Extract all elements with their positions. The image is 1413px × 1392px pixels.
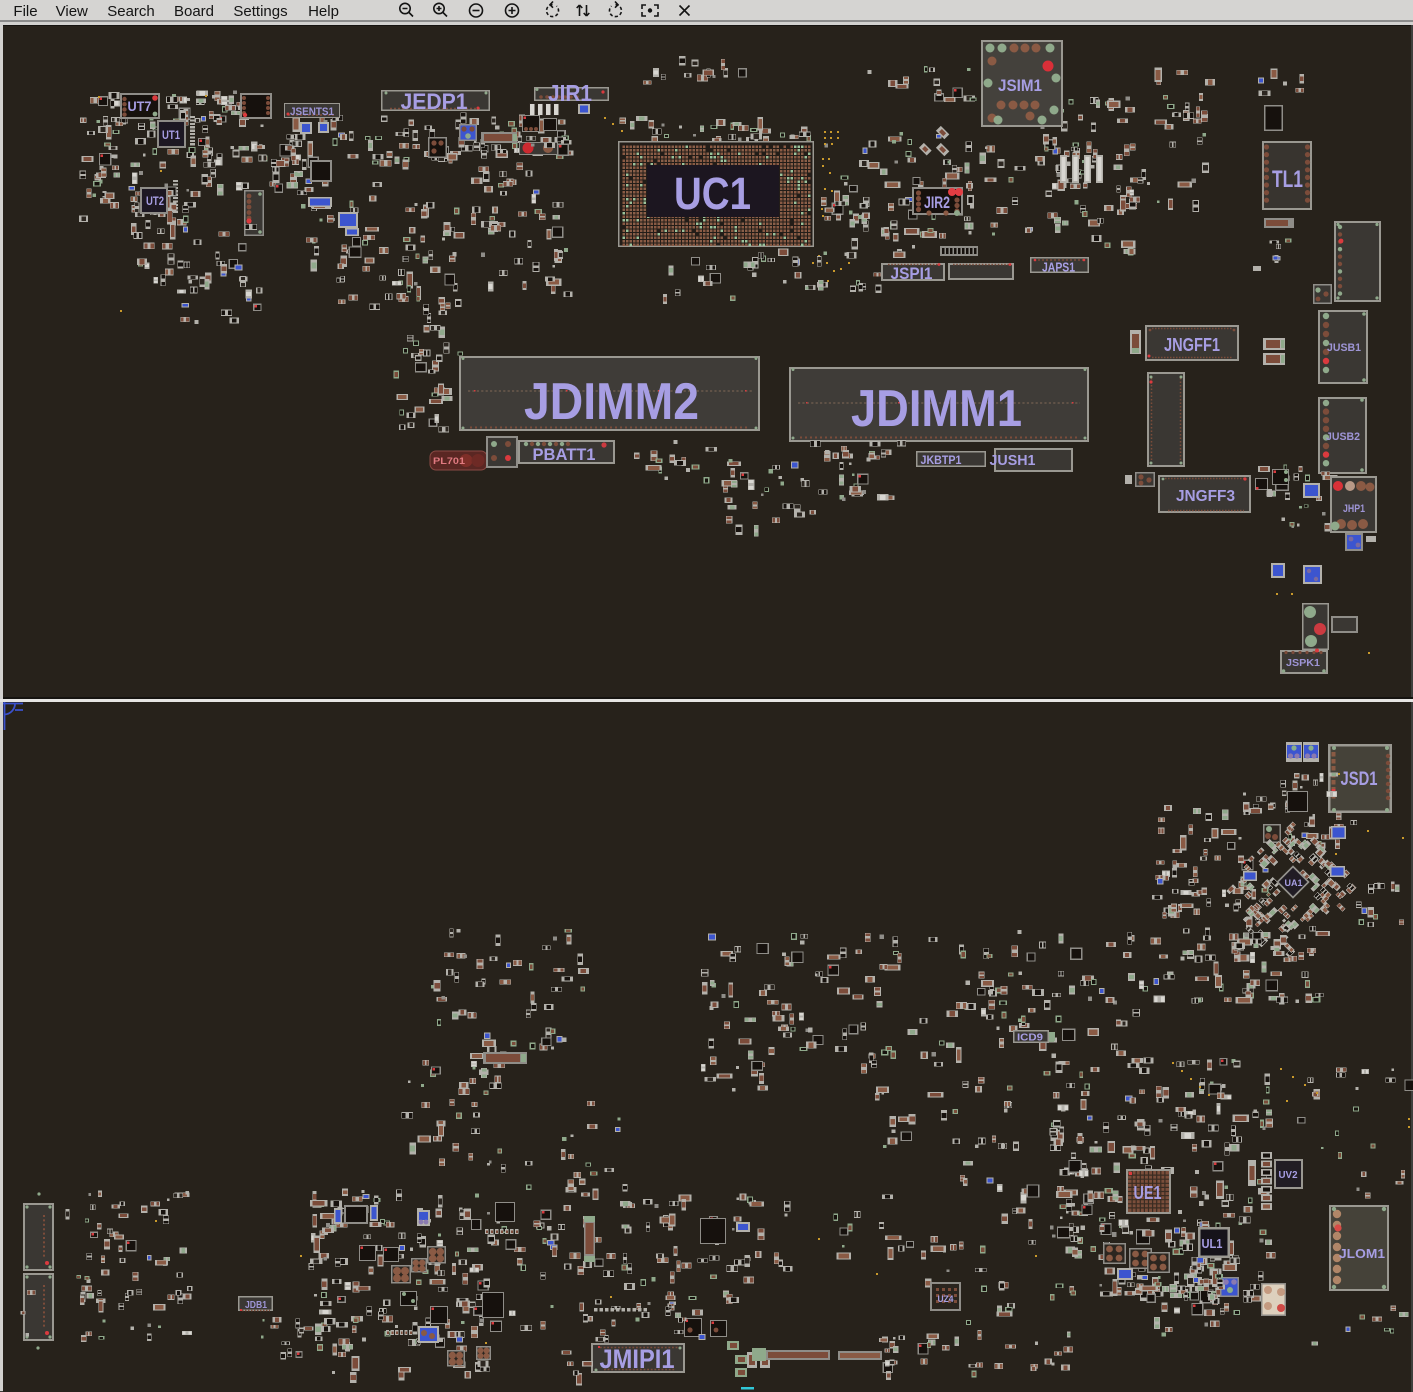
svg-text:JUSB1: JUSB1 [1327,342,1361,354]
svg-text:JUSB2: JUSB2 [1326,431,1360,443]
svg-text:JLOM1: JLOM1 [1339,1246,1385,1261]
svg-text:JUSH1: JUSH1 [990,452,1036,469]
svg-text:UL1: UL1 [1202,1237,1223,1251]
svg-text:JNGFF1: JNGFF1 [1164,335,1220,355]
svg-text:JSIM1: JSIM1 [998,76,1042,95]
svg-text:JSPK1: JSPK1 [1286,657,1320,669]
svg-text:JDB1: JDB1 [245,1300,267,1311]
svg-text:JSPI1: JSPI1 [891,265,933,283]
svg-text:JIR1: JIR1 [548,80,592,106]
svg-text:JSD1: JSD1 [1341,769,1378,790]
svg-text:UT7: UT7 [128,98,152,114]
svg-text:UT2: UT2 [146,194,164,208]
svg-text:UA1: UA1 [1285,878,1303,888]
svg-text:ICD9: ICD9 [1017,1033,1043,1044]
svg-text:UV2: UV2 [1279,1170,1298,1181]
svg-text:JHP1: JHP1 [1343,503,1365,515]
svg-text:UZ4: UZ4 [938,1294,954,1304]
svg-text:JNGFF3: JNGFF3 [1176,488,1235,505]
svg-text:JIR2: JIR2 [924,193,950,212]
svg-text:TL1: TL1 [1272,166,1303,193]
svg-text:PBATT1: PBATT1 [533,446,596,464]
svg-text:JDIMM1: JDIMM1 [851,380,1022,438]
svg-text:JSENTS1: JSENTS1 [290,106,334,118]
svg-text:UE1: UE1 [1134,1183,1162,1203]
svg-text:UC1: UC1 [674,168,751,219]
svg-text:JMIPI1: JMIPI1 [600,1344,675,1374]
svg-text:JEDP1: JEDP1 [401,89,468,114]
svg-text:UT1: UT1 [162,128,180,142]
svg-text:JKBTP1: JKBTP1 [921,455,963,467]
svg-text:PL701: PL701 [433,456,466,467]
svg-text:JAPS1: JAPS1 [1042,261,1075,275]
svg-text:JDIMM2: JDIMM2 [524,373,699,431]
